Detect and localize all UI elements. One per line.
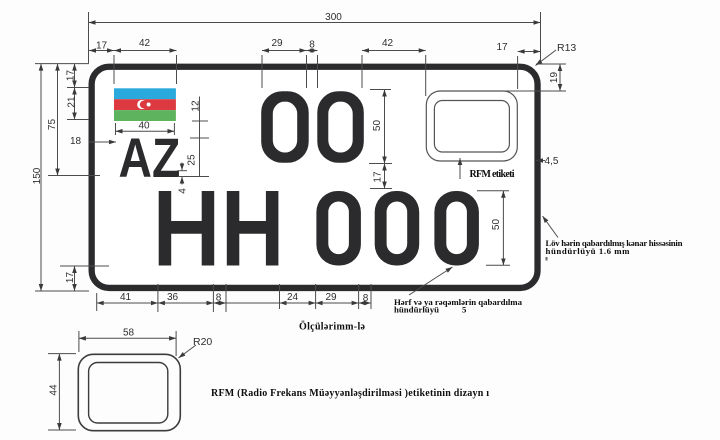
svg-text:41: 41 — [120, 292, 132, 303]
svg-text:17: 17 — [96, 41, 108, 52]
svg-text:8: 8 — [309, 40, 315, 51]
svg-text:36: 36 — [167, 292, 179, 303]
svg-text:17: 17 — [373, 171, 384, 183]
svg-text:150: 150 — [32, 167, 43, 184]
svg-text:21: 21 — [67, 96, 78, 108]
svg-text:40: 40 — [138, 121, 150, 132]
svg-text:29: 29 — [325, 292, 337, 303]
svg-text:58: 58 — [123, 328, 135, 339]
svg-text:R13: R13 — [557, 42, 576, 54]
svg-text:17: 17 — [65, 272, 76, 284]
svg-text:44: 44 — [48, 384, 59, 396]
svg-text:18: 18 — [70, 136, 82, 147]
svg-text:42: 42 — [382, 38, 394, 49]
svg-text:R20: R20 — [193, 336, 212, 348]
svg-text:4: 4 — [178, 188, 189, 194]
svg-text:50: 50 — [372, 120, 383, 132]
svg-text:50: 50 — [491, 219, 502, 231]
svg-text:19: 19 — [549, 72, 560, 84]
svg-text:8: 8 — [216, 293, 222, 304]
svg-text:AZ: AZ — [119, 127, 181, 189]
svg-text:RFM (Radio Frekans Müəyyənləşd: RFM (Radio Frekans Müəyyənləşdirilməsi )… — [211, 388, 489, 399]
svg-text:25: 25 — [187, 154, 198, 166]
svg-text:Ölçülərimm-lə: Ölçülərimm-lə — [299, 320, 366, 333]
svg-text:75: 75 — [47, 119, 58, 131]
svg-text:5: 5 — [462, 305, 467, 315]
svg-text:17: 17 — [496, 42, 508, 53]
svg-text:RFM etiketi: RFM etiketi — [470, 169, 515, 180]
svg-text:4,5: 4,5 — [545, 156, 559, 167]
svg-text:42: 42 — [139, 38, 151, 49]
svg-text:17: 17 — [66, 70, 77, 82]
svg-text:hündürlüyü 1.6 mm: hündürlüyü 1.6 mm — [546, 246, 631, 256]
svg-text:29: 29 — [271, 38, 283, 49]
svg-text:12: 12 — [191, 100, 202, 112]
svg-text:300: 300 — [325, 12, 342, 23]
svg-text:hündürlüyü: hündürlüyü — [394, 305, 439, 315]
svg-text:8: 8 — [363, 293, 369, 304]
svg-text:24: 24 — [287, 292, 299, 303]
